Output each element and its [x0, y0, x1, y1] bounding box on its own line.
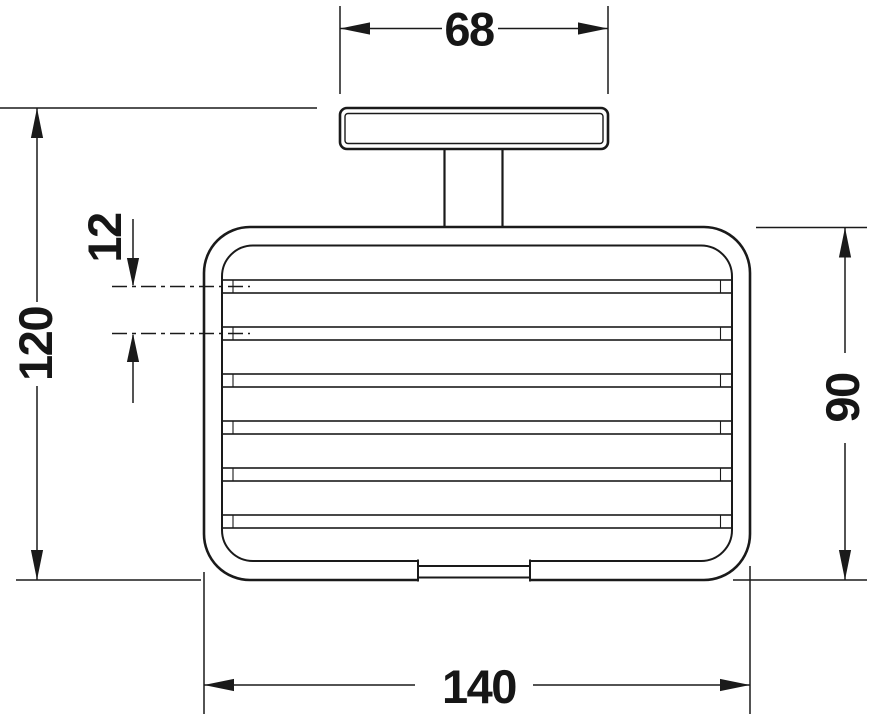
arrowhead-up [839, 228, 851, 258]
arrowhead-right [720, 679, 750, 691]
dim-label-basket-width: 140 [442, 660, 516, 713]
basket-bar [222, 421, 732, 434]
basket-bar [222, 515, 732, 528]
arrowhead-right [578, 22, 608, 34]
basket-bars [222, 280, 732, 528]
dim-label-plate-width: 68 [444, 3, 494, 56]
dim-label-bar-spacing: 12 [78, 213, 131, 263]
notch-mask [418, 555, 531, 585]
bar-outline [222, 421, 732, 434]
bar-outline [222, 468, 732, 481]
soap-basket-drawing: 68 120 12 90 140 [0, 0, 876, 717]
basket-bar [222, 374, 732, 387]
product-view [204, 108, 750, 585]
dim-plate-width: 68 [340, 3, 608, 95]
bar-outline [222, 515, 732, 528]
arrowhead-left [340, 22, 370, 34]
arrowhead-left [204, 679, 234, 691]
technical-drawing-canvas: 68 120 12 90 140 [0, 0, 876, 717]
basket-bar [222, 327, 732, 340]
arrowhead-down [31, 550, 43, 580]
bottom-rail-notch [418, 555, 531, 585]
wall-plate-inner-edge [345, 114, 603, 144]
bar-outline [222, 280, 732, 293]
arrowhead-up [31, 108, 43, 138]
basket-bar [222, 468, 732, 481]
dim-overall-height: 120 [0, 108, 317, 580]
dim-basket-height: 90 [733, 228, 869, 581]
basket-bar [222, 280, 732, 293]
dim-label-overall-height: 120 [9, 307, 62, 381]
dim-basket-width: 140 [204, 566, 750, 714]
bar-outline [222, 374, 732, 387]
arrowhead-up [127, 334, 139, 363]
dim-label-basket-height: 90 [816, 373, 869, 423]
arrowhead-down [839, 550, 851, 580]
bar-outline [222, 327, 732, 340]
